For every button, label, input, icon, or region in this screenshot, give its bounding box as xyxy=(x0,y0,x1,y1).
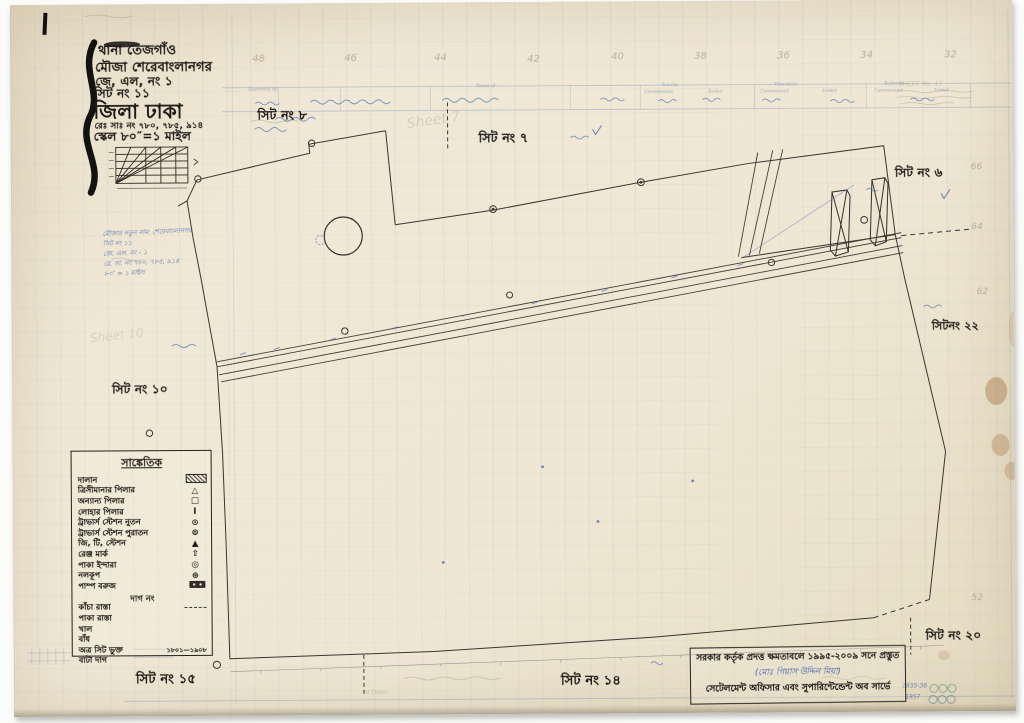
station-markers xyxy=(144,137,870,669)
sheet-label-7: সিট নং ৭ xyxy=(479,130,529,150)
grid-num: 64 xyxy=(971,222,983,232)
grid-num: 48 xyxy=(252,54,265,65)
paper-stains xyxy=(936,311,1016,661)
sheet-label-14: সিট নং ১৪ xyxy=(561,671,621,692)
road-lines xyxy=(216,149,904,382)
form-sub-ended2: Ended xyxy=(822,89,836,94)
grid-num: 46 xyxy=(344,53,357,64)
stamp-line-3: সেটেলমেন্ট অফিসার এবং সুপারিন্টেন্ডেন্ট … xyxy=(691,679,905,697)
tubewell-icon: ⊛ xyxy=(184,571,206,581)
grid-num: 38 xyxy=(694,51,707,62)
gt-station-icon: ▲ xyxy=(184,539,206,549)
pencil-corner-sheet-no: SHEET No. 11 xyxy=(898,79,943,87)
legend-title: সাঙ্কেতিক xyxy=(78,454,206,474)
pencil-scribbles xyxy=(85,10,977,684)
chains-scale-note: 10 Chains xyxy=(363,690,388,696)
form-col-survey: Survey xyxy=(662,83,678,88)
pond-circle xyxy=(324,217,362,255)
map-sheet-paper: থানা তেজগাঁও মৌজা শেরেবাংলানগর জে, এল, ন… xyxy=(10,0,1016,717)
scale-bar-diagram xyxy=(109,147,198,189)
form-sub-commenced3: Commenced xyxy=(874,89,902,94)
north-boundary xyxy=(197,131,386,180)
traverse-new-icon: ⊙ xyxy=(184,518,206,528)
grid-num: 62 xyxy=(977,287,989,297)
range-mark-icon: ⇧ xyxy=(184,549,206,559)
form-sub-ended3: Ended xyxy=(934,88,948,93)
blue-note-block: মৌজার নতুন নাম: শেরেবাংলানগর সিট নং ১১ জ… xyxy=(102,223,244,279)
year-note-2: 1957 xyxy=(905,694,920,701)
grid-num: 32 xyxy=(944,49,957,60)
sheet-label-20: সিট নং ২০ xyxy=(926,627,982,647)
legend-box: সাঙ্কেতিক দালান ত্রিসীমানার পিলার △ অন্য… xyxy=(71,450,213,657)
legend-row-pucca-road: পাকা রাস্তা xyxy=(79,613,207,624)
scale-label: স্কেল ৮০″=১ মাইল xyxy=(94,128,191,149)
pump-swatch xyxy=(184,581,206,591)
sheet-label-8: সিট নং ৮ xyxy=(257,107,307,127)
grid-num: 66 xyxy=(971,162,983,172)
sheet-label-6: সিট নং ৬ xyxy=(895,164,943,184)
well-icon: ◎ xyxy=(184,560,206,570)
grid-num: 34 xyxy=(860,50,873,61)
sheet-range-value: ১৮০১—১৯০৮ xyxy=(166,645,206,656)
grid-num: 36 xyxy=(777,50,790,61)
grid-num: 52 xyxy=(971,593,983,603)
legend-label: পাম্প বরুজ xyxy=(78,580,116,593)
legend-row-pump: পাম্প বরুজ xyxy=(78,581,206,592)
form-sub-commenced1: Commenced xyxy=(644,90,672,95)
sheet-label-10: সিট নং ১০ xyxy=(112,381,168,401)
plot-boundaries xyxy=(177,99,972,698)
sheet-label-15: সিট নং ১৫ xyxy=(136,670,196,691)
building-hatch-swatch xyxy=(184,474,206,486)
east-boundary xyxy=(895,234,946,599)
building-1 xyxy=(830,190,850,256)
legend-row-bata-dag: বাটা দাগ xyxy=(79,655,207,666)
form-col-examined: Examined by xyxy=(248,87,277,92)
iron-pillar-icon: Ⅰ xyxy=(184,507,206,517)
traverse-old-icon: ⊚ xyxy=(184,528,206,538)
stamp-signature: (মোঃ গিয়াস উদ্দিন মিয়া) xyxy=(691,664,905,681)
grid-num: 42 xyxy=(527,54,540,65)
scanned-map-scene: থানা তেজগাঁও মৌজা শেরেবাংলানগর জে, এল, ন… xyxy=(0,0,1024,723)
sheet-label-22: সিটনং ২২ xyxy=(932,317,979,336)
form-col-khanapuri: Khanapuri xyxy=(774,82,797,87)
legend-label: বাটা দাগ xyxy=(79,655,107,668)
grid-num: 40 xyxy=(611,51,624,62)
corner-stamp-circles xyxy=(929,684,956,703)
certification-stamp-box: সরকার কর্তৃক প্রদত্ত ক্ষমতাবলে ১৯৯৫-২০০৯… xyxy=(690,645,907,705)
grid-num: 44 xyxy=(434,52,447,63)
kutcha-road-sample xyxy=(185,607,207,608)
stamp-line-1: সরকার কর্তৃক প্রদত্ত ক্ষমতাবলে ১৯৯৫-২০০৯… xyxy=(691,648,905,666)
form-sub-commenced2: Commenced xyxy=(760,89,788,94)
west-boundary xyxy=(217,367,230,659)
ruled-lines xyxy=(120,9,1014,704)
form-col-nameof: Name of xyxy=(476,84,495,89)
form-sub-ended1: Ended xyxy=(708,90,722,95)
triangle-icon: △ xyxy=(184,486,206,496)
square-icon: □ xyxy=(184,496,206,506)
